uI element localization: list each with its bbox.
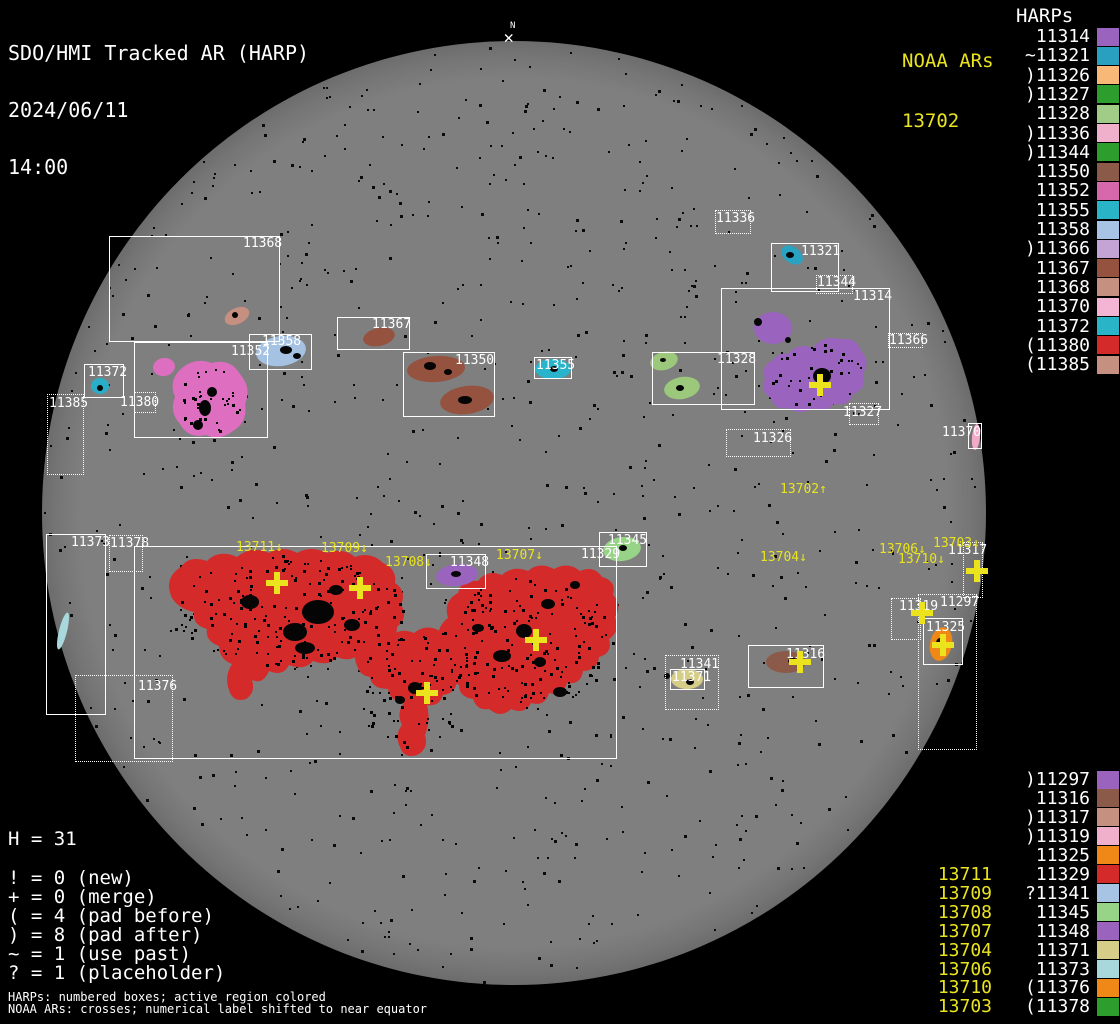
speckle bbox=[584, 788, 586, 790]
harps-list-entry: 11316 bbox=[1016, 789, 1090, 808]
harp-color-swatch bbox=[1097, 182, 1119, 200]
speckle bbox=[897, 424, 899, 426]
speckle bbox=[358, 180, 360, 182]
harp-color-swatch bbox=[1097, 846, 1119, 864]
speckle bbox=[621, 806, 623, 808]
speckle bbox=[455, 843, 457, 845]
speckle bbox=[444, 894, 446, 896]
speckle bbox=[143, 473, 145, 475]
speckle bbox=[399, 202, 402, 205]
speckle bbox=[496, 787, 498, 789]
harps-list-entry: )11319 bbox=[1016, 827, 1090, 846]
speckle bbox=[596, 940, 598, 942]
speckle bbox=[693, 285, 696, 288]
speckle bbox=[561, 832, 563, 834]
speckle bbox=[740, 734, 742, 736]
harps-list-entry: ~11321 bbox=[1016, 46, 1090, 65]
harp-color-swatch bbox=[1097, 85, 1119, 103]
harp-box-label-11341: 11341 bbox=[680, 658, 719, 671]
speckle bbox=[527, 904, 529, 906]
speckle bbox=[277, 870, 280, 873]
speckle bbox=[489, 258, 491, 260]
speckle bbox=[308, 410, 310, 412]
noaa-ar-label-13707: 13707↓ bbox=[496, 549, 543, 562]
speckle bbox=[695, 718, 697, 720]
harp-color-swatch bbox=[1097, 998, 1119, 1016]
speckle bbox=[858, 529, 860, 531]
speckle bbox=[382, 136, 384, 138]
speckle bbox=[642, 728, 644, 730]
harps-list-entry: 11329 bbox=[1016, 865, 1090, 884]
speckle bbox=[775, 627, 777, 629]
speckle bbox=[329, 882, 331, 884]
speckle bbox=[641, 485, 643, 487]
speckle bbox=[112, 649, 114, 651]
speckle bbox=[478, 867, 480, 869]
harp-color-swatch bbox=[1097, 884, 1119, 902]
noaa-list-entry: 13704 bbox=[935, 941, 992, 960]
speckle bbox=[180, 486, 183, 489]
noaa-cross-icon bbox=[266, 572, 288, 594]
speckle bbox=[538, 957, 541, 960]
speckle bbox=[834, 678, 836, 680]
harps-list-entry: 11345 bbox=[1016, 903, 1090, 922]
speckle bbox=[337, 354, 340, 357]
speckle bbox=[780, 576, 783, 579]
speckle bbox=[153, 227, 155, 229]
speckle bbox=[458, 117, 460, 119]
harp-box-label-11314: 11314 bbox=[853, 290, 892, 303]
speckle bbox=[211, 479, 213, 481]
speckle bbox=[445, 873, 447, 875]
speckle bbox=[727, 573, 729, 575]
speckle bbox=[409, 943, 411, 945]
harp-color-swatch bbox=[1097, 221, 1119, 239]
speckle bbox=[350, 280, 353, 283]
harp-box-label-11350: 11350 bbox=[455, 354, 494, 367]
speckle bbox=[655, 237, 657, 239]
noaa-list-entry: 13706 bbox=[935, 960, 992, 979]
speckle bbox=[924, 374, 926, 376]
speckle bbox=[381, 840, 383, 842]
speckle bbox=[637, 914, 639, 916]
speckle bbox=[356, 497, 358, 499]
speckle bbox=[597, 501, 599, 503]
speckle bbox=[642, 495, 644, 497]
speckle bbox=[442, 133, 445, 136]
speckle bbox=[866, 484, 868, 486]
harp-color-swatch bbox=[1097, 771, 1119, 789]
speckle bbox=[936, 489, 938, 491]
speckle bbox=[625, 242, 627, 244]
speckle bbox=[377, 486, 379, 488]
harp-color-swatch bbox=[1097, 298, 1119, 316]
speckle bbox=[806, 211, 808, 213]
speckle bbox=[550, 964, 553, 967]
speckle bbox=[367, 109, 369, 111]
speckle bbox=[790, 152, 792, 154]
speckle bbox=[628, 144, 630, 146]
speckle bbox=[349, 106, 351, 108]
speckle bbox=[280, 306, 282, 308]
speckle bbox=[669, 251, 671, 253]
harp-color-swatch bbox=[1097, 960, 1119, 978]
speckle bbox=[783, 137, 785, 139]
speckle bbox=[644, 467, 646, 469]
speckle bbox=[691, 285, 693, 287]
noaa-list-entry: 13708 bbox=[935, 903, 992, 922]
speckle bbox=[374, 910, 376, 912]
speckle bbox=[496, 236, 499, 239]
speckle bbox=[109, 624, 111, 626]
harps-list-entry: 11370 bbox=[1016, 297, 1090, 316]
speckle bbox=[752, 574, 755, 577]
noaa-ars-header: NOAA ARs bbox=[902, 51, 994, 71]
speckle bbox=[291, 287, 293, 289]
speckle bbox=[699, 820, 701, 822]
speckle bbox=[760, 751, 762, 753]
speckle bbox=[579, 427, 582, 430]
harp-color-swatch bbox=[1097, 143, 1119, 161]
speckle bbox=[625, 667, 627, 669]
speckle bbox=[943, 478, 945, 480]
speckle bbox=[646, 175, 648, 177]
speckle bbox=[785, 417, 788, 420]
speckle bbox=[554, 840, 557, 843]
speckle bbox=[547, 857, 549, 859]
speckle bbox=[402, 875, 405, 878]
speckle bbox=[644, 852, 646, 854]
speckle bbox=[658, 444, 661, 447]
speckle bbox=[828, 808, 831, 811]
speckle bbox=[643, 416, 645, 418]
speckle bbox=[522, 303, 524, 305]
speckle bbox=[513, 837, 515, 839]
speckle bbox=[825, 460, 828, 463]
speckle bbox=[545, 528, 547, 530]
speckle bbox=[709, 892, 711, 894]
speckle bbox=[746, 272, 749, 275]
speckle bbox=[606, 838, 608, 840]
north-cross-icon: ✕ bbox=[502, 31, 515, 46]
speckle bbox=[481, 213, 484, 216]
speckle bbox=[297, 906, 299, 908]
speckle bbox=[352, 817, 355, 820]
speckle bbox=[739, 696, 741, 698]
speckle bbox=[360, 176, 363, 179]
date-line: 2024/06/11 bbox=[8, 101, 309, 120]
speckle bbox=[96, 530, 98, 532]
speckle bbox=[428, 201, 430, 203]
speckle bbox=[834, 531, 836, 533]
speckle bbox=[629, 466, 632, 469]
speckle bbox=[355, 268, 357, 270]
speckle bbox=[383, 495, 385, 497]
harps-list-entry: )11327 bbox=[1016, 85, 1090, 104]
harp-box-label-11344: 11344 bbox=[817, 276, 856, 289]
speckle bbox=[868, 644, 871, 647]
speckle bbox=[796, 842, 799, 845]
speckle bbox=[944, 341, 946, 343]
speckle bbox=[523, 183, 525, 185]
speckle bbox=[902, 685, 904, 687]
harp-color-swatch bbox=[1097, 941, 1119, 959]
speckle bbox=[406, 787, 409, 790]
harps-list-entry: (11378 bbox=[1016, 997, 1090, 1016]
speckle bbox=[394, 784, 396, 786]
speckle bbox=[320, 536, 322, 538]
speckle bbox=[461, 912, 463, 914]
speckle bbox=[387, 453, 389, 455]
speckle bbox=[768, 504, 771, 507]
speckle bbox=[645, 342, 647, 344]
speckle bbox=[213, 439, 216, 442]
harp-color-swatch bbox=[1097, 979, 1119, 997]
speckle bbox=[434, 321, 437, 324]
speckle bbox=[545, 797, 547, 799]
speckle bbox=[563, 128, 565, 130]
speckle bbox=[583, 487, 585, 489]
speckle bbox=[480, 68, 482, 70]
speckle bbox=[470, 948, 473, 951]
speckle bbox=[307, 505, 309, 507]
speckle bbox=[287, 255, 289, 257]
noaa-ar-label-13709: 13709↓ bbox=[321, 542, 368, 555]
speckle bbox=[639, 190, 641, 192]
harp-box-label-11329: 11329 bbox=[581, 548, 620, 561]
harps-list-entry: 11367 bbox=[1016, 259, 1090, 278]
speckle bbox=[406, 461, 408, 463]
speckle bbox=[655, 94, 657, 96]
speckle bbox=[762, 708, 765, 711]
speckle bbox=[592, 915, 594, 917]
speckle bbox=[579, 938, 581, 940]
speckle bbox=[441, 505, 444, 508]
speckle bbox=[561, 524, 564, 527]
speckle bbox=[676, 226, 678, 228]
speckle bbox=[781, 789, 784, 792]
speckle bbox=[741, 105, 743, 107]
speckle bbox=[622, 831, 624, 833]
speckle bbox=[326, 97, 328, 99]
speckle bbox=[347, 939, 349, 941]
speckle bbox=[400, 215, 403, 218]
speckle bbox=[681, 84, 683, 86]
speckle bbox=[427, 215, 429, 217]
speckle bbox=[231, 461, 234, 464]
speckle bbox=[305, 253, 308, 256]
speckle bbox=[235, 771, 237, 773]
speckle bbox=[756, 905, 758, 907]
speckle bbox=[818, 743, 821, 746]
speckle bbox=[624, 189, 626, 191]
speckle bbox=[512, 132, 514, 134]
speckle bbox=[545, 155, 547, 157]
speckle bbox=[733, 510, 735, 512]
speckle bbox=[743, 859, 745, 861]
speckle bbox=[106, 343, 108, 345]
speckle bbox=[747, 694, 750, 697]
speckle bbox=[490, 145, 492, 147]
speckle bbox=[411, 909, 413, 911]
noaa-list-entry: 13709 bbox=[935, 884, 992, 903]
speckle bbox=[369, 164, 371, 166]
harp-color-swatch bbox=[1097, 240, 1119, 258]
speckle bbox=[755, 815, 758, 818]
speckle bbox=[290, 770, 292, 772]
speckle bbox=[754, 128, 757, 131]
speckle bbox=[241, 456, 243, 458]
speckle bbox=[905, 751, 908, 754]
speckle bbox=[869, 218, 871, 220]
speckle bbox=[751, 912, 753, 914]
speckle bbox=[273, 446, 276, 449]
speckle bbox=[775, 804, 777, 806]
speckle bbox=[717, 567, 719, 569]
speckle bbox=[643, 517, 646, 520]
speckle bbox=[292, 405, 295, 408]
harps-list-entry: 11358 bbox=[1016, 220, 1090, 239]
speckle bbox=[577, 334, 580, 337]
speckle bbox=[541, 350, 543, 352]
speckle bbox=[677, 100, 680, 103]
speckle bbox=[353, 384, 355, 386]
speckle bbox=[737, 552, 739, 554]
speckle bbox=[220, 818, 222, 820]
speckle bbox=[384, 936, 386, 938]
speckle bbox=[537, 857, 539, 859]
speckle bbox=[567, 266, 569, 268]
speckle bbox=[327, 272, 329, 274]
speckle bbox=[376, 220, 378, 222]
harp-box-label-11358: 11358 bbox=[262, 335, 301, 348]
speckle bbox=[892, 734, 895, 737]
speckle bbox=[239, 499, 242, 502]
harps-list-entry: ?11341 bbox=[1016, 884, 1090, 903]
speckle bbox=[833, 449, 836, 452]
speckle bbox=[311, 170, 313, 172]
speckle bbox=[873, 644, 876, 647]
speckle bbox=[953, 451, 956, 454]
speckle bbox=[646, 591, 649, 594]
speckle bbox=[639, 686, 641, 688]
speckle bbox=[645, 334, 648, 337]
harp-color-swatch bbox=[1097, 922, 1119, 940]
speckle bbox=[618, 58, 620, 60]
speckle bbox=[593, 404, 596, 407]
speckle bbox=[644, 658, 646, 660]
speckle bbox=[646, 670, 649, 673]
speckle bbox=[623, 105, 625, 107]
noaa-cross-icon bbox=[349, 577, 371, 599]
speckle bbox=[530, 361, 532, 363]
speckle bbox=[575, 356, 577, 358]
speckle bbox=[596, 779, 599, 782]
speckle bbox=[678, 875, 680, 877]
speckle bbox=[281, 848, 284, 851]
speckle bbox=[553, 304, 555, 306]
speckle bbox=[776, 521, 779, 524]
speckle bbox=[546, 484, 549, 487]
speckle bbox=[201, 823, 204, 826]
speckle bbox=[552, 157, 554, 159]
speckle bbox=[550, 941, 552, 943]
speckle bbox=[678, 513, 681, 516]
speckle bbox=[693, 208, 695, 210]
speckle bbox=[662, 555, 664, 557]
speckle bbox=[450, 953, 452, 955]
speckle bbox=[589, 418, 591, 420]
speckle bbox=[928, 568, 930, 570]
harps-list-entry: )11326 bbox=[1016, 66, 1090, 85]
speckle bbox=[815, 720, 817, 722]
harp-box-label-11378: 11378 bbox=[110, 537, 149, 550]
speckle bbox=[576, 219, 579, 222]
speckle bbox=[791, 814, 793, 816]
noaa-ars-value: 13702 bbox=[902, 111, 994, 131]
speckle bbox=[107, 424, 109, 426]
speckle bbox=[738, 867, 740, 869]
speckle bbox=[360, 852, 362, 854]
harp-color-swatch bbox=[1097, 278, 1119, 296]
harp-box-label-11372: 11372 bbox=[88, 366, 127, 379]
speckle bbox=[462, 284, 464, 286]
harp-color-swatch bbox=[1097, 259, 1119, 277]
speckle bbox=[565, 486, 568, 489]
speckle bbox=[457, 288, 459, 290]
speckle bbox=[611, 923, 613, 925]
speckle bbox=[505, 870, 507, 872]
harps-list-entry: 11348 bbox=[1016, 922, 1090, 941]
speckle bbox=[71, 390, 73, 392]
speckle bbox=[739, 838, 742, 841]
harp-color-swatch bbox=[1097, 789, 1119, 807]
speckle bbox=[417, 111, 419, 113]
time-line: 14:00 bbox=[8, 158, 309, 177]
speckle bbox=[576, 298, 578, 300]
speckle bbox=[489, 183, 491, 185]
speckle bbox=[741, 282, 743, 284]
speckle bbox=[193, 475, 195, 477]
speckle bbox=[645, 140, 647, 142]
speckle bbox=[576, 101, 579, 104]
noaa-list-entry: 13711 bbox=[935, 865, 992, 884]
speckle bbox=[329, 96, 331, 98]
speckle bbox=[696, 225, 698, 227]
speckle bbox=[791, 868, 793, 870]
speckle bbox=[610, 765, 612, 767]
speckle bbox=[193, 807, 196, 810]
harp-box-label-11321: 11321 bbox=[801, 245, 840, 258]
speckle bbox=[653, 479, 655, 481]
speckle bbox=[462, 500, 464, 502]
speckle bbox=[574, 857, 576, 859]
speckle bbox=[686, 138, 688, 140]
speckle bbox=[361, 95, 363, 97]
noaa-ar-label-13711: 13711↓ bbox=[236, 541, 283, 554]
harps-list-entry: (11380 bbox=[1016, 336, 1090, 355]
speckle bbox=[465, 99, 467, 101]
harp-box-label-11326: 11326 bbox=[753, 432, 792, 445]
speckle bbox=[513, 397, 515, 399]
harp-box-label-11348: 11348 bbox=[450, 556, 489, 569]
speckle bbox=[621, 287, 623, 289]
speckle bbox=[480, 523, 483, 526]
harp-box-11329 bbox=[134, 546, 617, 759]
speckle bbox=[872, 549, 874, 551]
speckle bbox=[401, 144, 403, 146]
speckle bbox=[366, 89, 368, 91]
